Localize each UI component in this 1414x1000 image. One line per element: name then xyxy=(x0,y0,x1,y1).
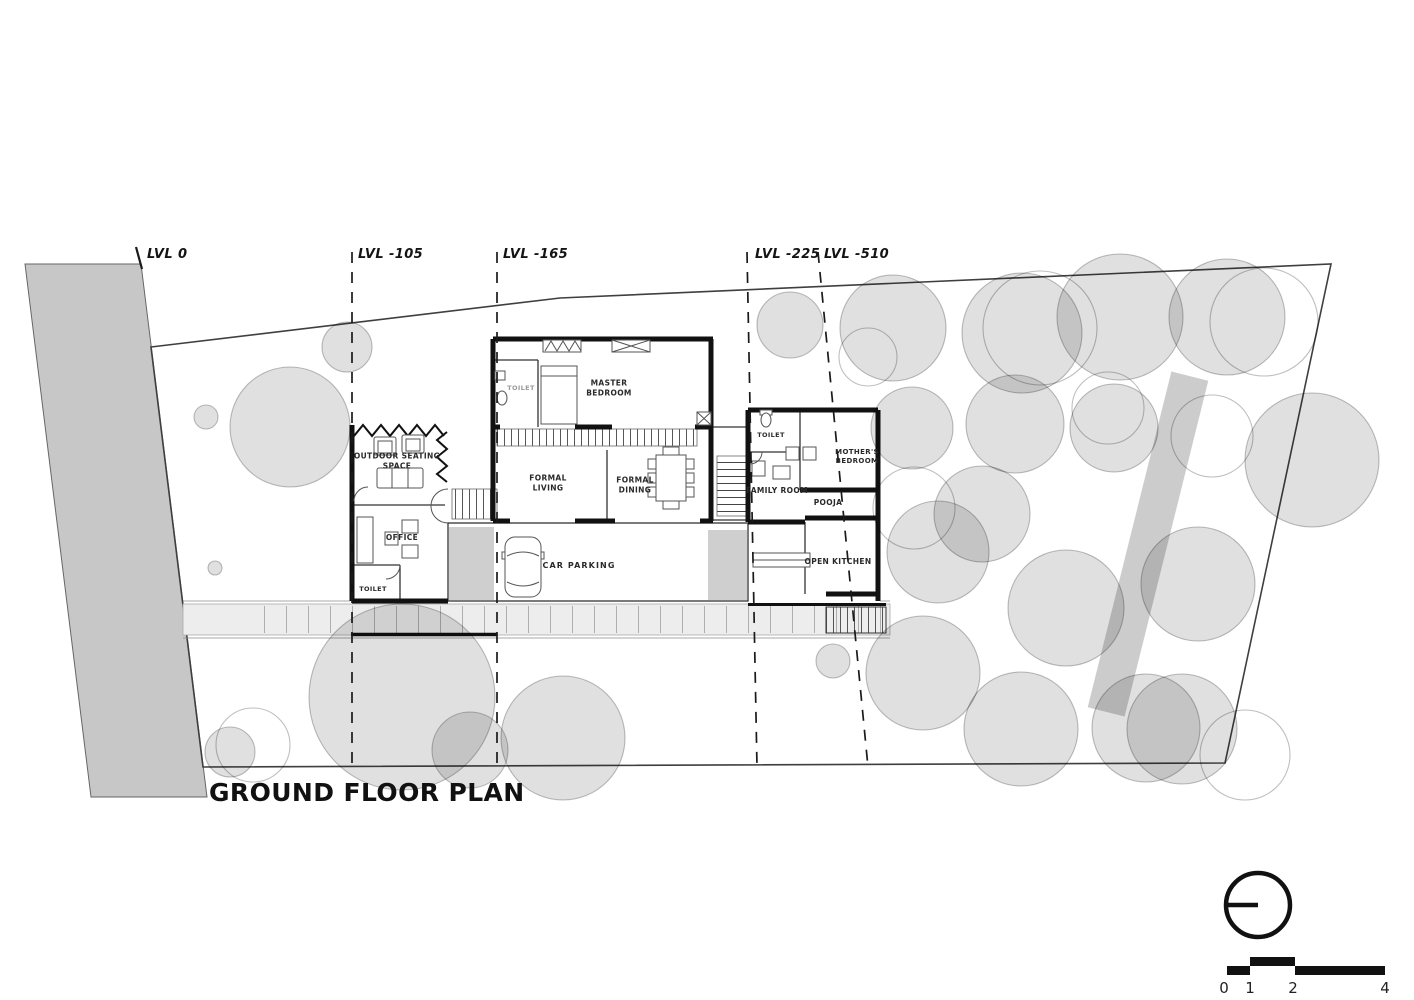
ground-floor-plan-sheet: LVL 0 LVL -105 LVL -165 LVL -225 LVL -51… xyxy=(0,0,1414,1000)
level-label-225: LVL -225 xyxy=(755,247,820,262)
scale-label-1: 1 xyxy=(1245,979,1255,997)
level-label-0: LVL 0 xyxy=(147,247,187,262)
scale-label-4: 4 xyxy=(1380,979,1390,997)
floor-plan-drawing xyxy=(0,0,1414,1000)
scale-label-2: 2 xyxy=(1288,979,1298,997)
level-label-510: LVL -510 xyxy=(824,247,889,262)
scale-bar xyxy=(1227,957,1385,975)
page-title: GROUND FLOOR PLAN xyxy=(209,778,525,807)
north-arrow-icon xyxy=(1226,873,1290,937)
building xyxy=(350,337,886,633)
walkway xyxy=(183,601,890,638)
level-label-165: LVL -165 xyxy=(503,247,568,262)
scale-label-0: 0 xyxy=(1219,979,1229,997)
level-label-105: LVL -105 xyxy=(358,247,423,262)
